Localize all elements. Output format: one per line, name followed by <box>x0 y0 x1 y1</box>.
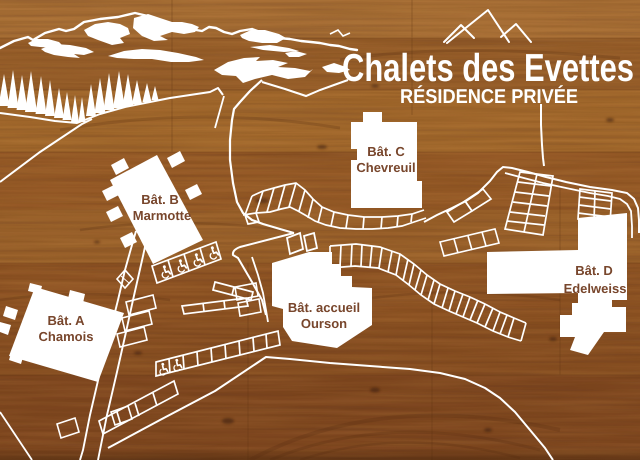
svg-text:Bât. B: Bât. B <box>141 192 179 207</box>
svg-text:Bât. A: Bât. A <box>47 313 85 328</box>
svg-text:Chevreuil: Chevreuil <box>356 160 415 175</box>
svg-text:Bât. D: Bât. D <box>575 263 613 278</box>
svg-text:Chamois: Chamois <box>39 329 94 344</box>
svg-text:RÉSIDENCE PRIVÉE: RÉSIDENCE PRIVÉE <box>400 85 578 108</box>
svg-text:Edelweiss: Edelweiss <box>564 281 627 296</box>
svg-text:Ourson: Ourson <box>301 316 347 331</box>
svg-text:Bât. accueil: Bât. accueil <box>288 300 360 315</box>
svg-text:Chalets des Evettes: Chalets des Evettes <box>342 47 634 90</box>
svg-text:Bât. C: Bât. C <box>367 144 405 159</box>
svg-text:Marmotte: Marmotte <box>133 208 192 223</box>
